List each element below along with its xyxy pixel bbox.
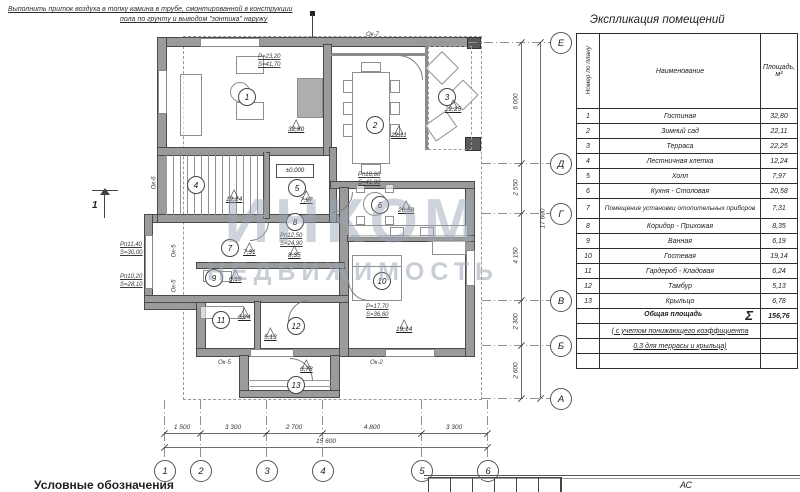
note-num-cell xyxy=(577,324,600,339)
room-tag-7: 7 xyxy=(221,239,239,257)
schedule-row: 7Помещение установки отопительных прибор… xyxy=(577,199,798,219)
furniture-sofa xyxy=(180,74,202,136)
room-schedule-table: Номер по плану Наименование Площадь, м² … xyxy=(576,33,798,369)
room-tag-13: 13 xyxy=(287,376,305,394)
drawing-sheet: Выполнить приток воздуха в топку камина … xyxy=(0,0,800,492)
dimension-value: 2 600 xyxy=(513,351,520,391)
room-area-value: 5,13 xyxy=(264,335,277,342)
total-value: 156,76 xyxy=(761,309,798,324)
peri-line: S=28,10 xyxy=(120,282,143,288)
chair xyxy=(343,80,353,93)
dimension-value: 4 150 xyxy=(513,236,520,276)
room-name: Коридор - Прихожая xyxy=(600,219,761,234)
room-peri-label: Рп11,40 S=30,00 xyxy=(120,242,143,257)
wall-segment xyxy=(240,356,248,394)
room-area: 7,97 xyxy=(761,169,798,184)
room-number: 1 xyxy=(238,88,256,106)
room-area-tag: △7,31 xyxy=(243,241,256,257)
room-area-value: 32,80 xyxy=(288,127,304,134)
room-name: Ванная xyxy=(600,234,761,249)
room-number: 6 xyxy=(371,196,389,214)
empty-cell xyxy=(600,354,761,369)
room-area-value: 19,14 xyxy=(396,327,412,334)
chair xyxy=(385,184,394,193)
window xyxy=(158,70,167,114)
axis-circle-E: Е xyxy=(550,32,572,54)
section-number: 1 xyxy=(92,200,98,211)
annotation-line-2: пола по грунту и выводом "зонтика" наруж… xyxy=(120,16,267,23)
note-area-cell xyxy=(761,324,798,339)
room-area-value: 20,58 xyxy=(398,208,414,215)
schedule-row: 4Лестничная клетка12,24 xyxy=(577,154,798,169)
wall-segment xyxy=(331,356,339,394)
room-num: 4 xyxy=(577,154,600,169)
wall-segment xyxy=(145,302,205,309)
stamp-cell xyxy=(451,478,473,492)
wall-segment xyxy=(158,215,348,222)
peri-line: Р=17,70 xyxy=(366,304,389,310)
wardrobe xyxy=(432,240,466,255)
room-area-value: 8,35 xyxy=(288,253,301,260)
axis-circle-A: А xyxy=(550,388,572,410)
room-number: 4 xyxy=(187,176,205,194)
chair xyxy=(390,80,400,93)
sigma-symbol: Σ xyxy=(745,311,753,321)
room-tag-8: 8 xyxy=(286,213,304,231)
room-name: Холл xyxy=(600,169,761,184)
room-num: 1 xyxy=(577,109,600,124)
peri-line: S=36,60 xyxy=(366,312,389,318)
axis-line xyxy=(482,163,552,164)
room-number: 12 xyxy=(287,317,305,335)
room-num: 12 xyxy=(577,279,600,294)
axis-circle-3: 3 xyxy=(256,460,278,482)
stamp-cell xyxy=(473,478,495,492)
room-area-tag: △32,80 xyxy=(288,118,304,134)
room-number: 2 xyxy=(366,116,384,134)
room-peri-label: Рп10,20 S=28,10 xyxy=(120,274,143,289)
window-tag: Ок-5 xyxy=(171,245,177,258)
peri-line: S=41,90 xyxy=(358,180,381,186)
room-area-value: 7,31 xyxy=(243,250,256,257)
schedule-row: 5Холл7,97 xyxy=(577,169,798,184)
schedule-row: 13Крыльцо6,78 xyxy=(577,294,798,309)
dimension-value: 4 800 xyxy=(354,424,390,431)
schedule-empty-row xyxy=(577,354,798,369)
total-num-cell xyxy=(577,309,600,324)
schedule-header-row: Номер по плану Наименование Площадь, м² xyxy=(577,34,798,109)
room-area-value: 6,78 xyxy=(300,367,313,374)
wall-segment xyxy=(331,182,474,188)
room-area-value: 6,19 xyxy=(229,277,242,284)
room-area: 32,80 xyxy=(761,109,798,124)
room-num: 11 xyxy=(577,264,600,279)
room-tag-10: 10 xyxy=(373,272,391,290)
chair xyxy=(343,124,353,137)
schedule-title: Экспликация помещений xyxy=(590,14,800,26)
axis-line xyxy=(266,400,267,458)
axis-line xyxy=(164,400,165,458)
room-name: Крыльцо xyxy=(600,294,761,309)
room-num: 9 xyxy=(577,234,600,249)
room-area-tag: △22,25 xyxy=(445,98,461,114)
peri-line: Р=23,20 xyxy=(258,54,281,60)
room-number: 11 xyxy=(212,311,230,329)
axis-line xyxy=(322,400,323,458)
window-tag: Ок-5 xyxy=(218,360,231,366)
empty-cell xyxy=(761,354,798,369)
schedule-row: 3Терраса22,25 xyxy=(577,139,798,154)
room-name: Тамбур xyxy=(600,279,761,294)
peri-line: Рп11,40 xyxy=(120,242,142,248)
window-tag: Ок-7 xyxy=(366,32,379,38)
room-area: 22,25 xyxy=(761,139,798,154)
total-label: Общая площадь xyxy=(644,311,702,318)
room-tag-6: 6 xyxy=(371,196,389,214)
section-arrow-line xyxy=(104,192,105,218)
annotation-line-1: Выполнить приток воздуха в топку камина … xyxy=(8,6,292,13)
room-area: 12,24 xyxy=(761,154,798,169)
stamp-cell xyxy=(517,478,539,492)
room-tag-2: 2 xyxy=(366,116,384,134)
dimension-total: 15 600 xyxy=(306,438,346,445)
chair xyxy=(390,102,400,115)
peri-line: S=30,00 xyxy=(120,250,143,256)
room-area: 7,31 xyxy=(761,199,798,219)
axis-line xyxy=(487,400,488,458)
room-num: 6 xyxy=(577,184,600,199)
window-tag: Ок-2 xyxy=(370,360,383,366)
legend-title: Условные обозначения xyxy=(34,478,174,492)
room-area-tag: △6,78 xyxy=(300,358,313,374)
room-peri-label: Р=17,70 S=36,60 xyxy=(366,304,389,319)
room-area-tag: △7,97 xyxy=(300,189,313,205)
room-num: 3 xyxy=(577,139,600,154)
axis-circle-B: Б xyxy=(550,335,572,357)
stove xyxy=(420,227,434,236)
room-name: Помещение установки отопительных приборо… xyxy=(600,199,761,219)
sink xyxy=(390,227,404,236)
room-area-tag: △6,19 xyxy=(229,268,242,284)
peri-line: Рп12,50 xyxy=(280,233,302,239)
room-area: 20,58 xyxy=(761,184,798,199)
note-num-cell xyxy=(577,339,600,354)
room-area-tag: △12,24 xyxy=(226,188,242,204)
schedule-row: 12Тамбур5,13 xyxy=(577,279,798,294)
window xyxy=(200,38,260,47)
kitchen-counter xyxy=(348,225,468,238)
room-tag-9: 9 xyxy=(205,269,223,287)
window xyxy=(466,250,475,286)
glazing-line xyxy=(331,53,427,56)
room-name: Терраса xyxy=(600,139,761,154)
schedule-row: 1Гостиная32,80 xyxy=(577,109,798,124)
room-area-value: 22,25 xyxy=(445,107,461,114)
room-tag-11: 11 xyxy=(212,311,230,329)
room-num: 13 xyxy=(577,294,600,309)
window xyxy=(385,349,435,357)
chair xyxy=(343,102,353,115)
schedule-row: 6Кухня - Столовая20,58 xyxy=(577,184,798,199)
room-area-value: 6,24 xyxy=(238,315,251,322)
total-label-cell: Общая площадьΣ xyxy=(600,309,761,324)
peri-line: Рп10,20 xyxy=(120,274,142,280)
wall-segment xyxy=(340,188,348,356)
room-name: Лестничная клетка xyxy=(600,154,761,169)
chair xyxy=(385,216,394,225)
room-tag-12: 12 xyxy=(287,317,305,335)
room-area-value: 22,11 xyxy=(391,133,407,140)
schedule-row: 10Гостевая19,14 xyxy=(577,249,798,264)
dimension-value: 2 700 xyxy=(277,424,311,431)
window xyxy=(250,349,294,357)
dimension-line xyxy=(164,447,488,448)
bed-pillow xyxy=(352,255,402,267)
schedule-row: 8Коридор - Прихожая8,35 xyxy=(577,219,798,234)
peri-line: Рп18,60 xyxy=(358,172,380,178)
col-header-number-text: Номер по плану xyxy=(585,46,592,94)
window-tag: Ок-6 xyxy=(151,177,157,190)
axis-line xyxy=(482,345,552,346)
room-area: 6,24 xyxy=(761,264,798,279)
staircase-hatch xyxy=(166,150,266,216)
dimension-total: 17 600 xyxy=(540,199,547,239)
note-area-cell xyxy=(761,339,798,354)
section-arrow-bar xyxy=(92,190,118,191)
col-header-name: Наименование xyxy=(600,34,761,109)
room-peri-label: Рп18,60 S=41,90 xyxy=(358,172,381,187)
room-area-tag: △20,58 xyxy=(398,199,414,215)
peri-line: S=41,70 xyxy=(258,62,281,68)
dimension-value: 1 500 xyxy=(167,424,197,431)
room-area: 5,13 xyxy=(761,279,798,294)
axis-circle-V: В xyxy=(550,290,572,312)
axis-circle-D: Д xyxy=(550,153,572,175)
fireplace xyxy=(297,78,323,118)
axis-line xyxy=(420,42,552,43)
window xyxy=(145,235,153,289)
room-name: Зимний сад xyxy=(600,124,761,139)
room-area-tag: △22,11 xyxy=(391,124,407,140)
schedule-note-2: 0,3 для террасы и крыльца) xyxy=(600,339,761,354)
room-name: Кухня - Столовая xyxy=(600,184,761,199)
schedule-row: 2Зимний сад22,11 xyxy=(577,124,798,139)
schedule-row: 9Ванная6,19 xyxy=(577,234,798,249)
chair xyxy=(356,216,365,225)
room-area: 8,35 xyxy=(761,219,798,234)
chair xyxy=(361,62,381,72)
room-tag-4: 4 xyxy=(187,176,205,194)
room-num: 10 xyxy=(577,249,600,264)
room-tag-1: 1 xyxy=(238,88,256,106)
peri-line: S=24,90 xyxy=(280,241,303,247)
axis-line xyxy=(200,400,201,458)
dimension-value: 6 000 xyxy=(513,82,520,122)
room-number: 8 xyxy=(286,213,304,231)
room-area: 22,11 xyxy=(761,124,798,139)
room-num: 5 xyxy=(577,169,600,184)
room-area-tag: △6,24 xyxy=(238,306,251,322)
schedule-note-row: ( с учетом понижающего коэффициента xyxy=(577,324,798,339)
schedule-note-row: 0,3 для террасы и крыльца) xyxy=(577,339,798,354)
room-name: Гардероб - Кладовая xyxy=(600,264,761,279)
wall-segment xyxy=(255,302,260,349)
room-area-value: 12,24 xyxy=(226,197,242,204)
room-area-tag: △5,13 xyxy=(264,326,277,342)
room-number: 7 xyxy=(221,239,239,257)
dimension-value: 3 300 xyxy=(437,424,471,431)
room-name: Гостевая xyxy=(600,249,761,264)
dimension-value: 2 550 xyxy=(513,168,520,208)
schedule-row: 11Гардероб - Кладовая6,24 xyxy=(577,264,798,279)
room-number: 9 xyxy=(205,269,223,287)
sheet-code: АС xyxy=(680,480,692,490)
room-area: 6,78 xyxy=(761,294,798,309)
wall-segment xyxy=(324,45,331,155)
room-name: Гостиная xyxy=(600,109,761,124)
stamp-cell xyxy=(539,478,561,492)
room-area-tag: △19,14 xyxy=(396,318,412,334)
room-num: 7 xyxy=(577,199,600,219)
room-area: 19,14 xyxy=(761,249,798,264)
axis-line xyxy=(421,400,422,458)
wall-segment xyxy=(197,263,344,268)
room-area: 6,19 xyxy=(761,234,798,249)
room-peri-label: Рп12,50 S=24,90 xyxy=(280,233,303,248)
axis-circle-G: Г xyxy=(550,203,572,225)
stamp-cell xyxy=(495,478,517,492)
room-number: 13 xyxy=(287,376,305,394)
room-number: 10 xyxy=(373,272,391,290)
room-peri-label: Р=23,20 S=41,70 xyxy=(258,54,281,69)
wall-segment xyxy=(145,296,348,302)
schedule-total-row: Общая площадьΣ 156,76 xyxy=(577,309,798,324)
room-area-value: 7,97 xyxy=(300,198,313,205)
col-header-area: Площадь, м² xyxy=(761,34,798,109)
wall-segment xyxy=(158,38,166,222)
level-mark: ±0.000 xyxy=(276,164,314,178)
stamp-cell xyxy=(429,478,451,492)
axis-circle-2: 2 xyxy=(190,460,212,482)
dimension-line xyxy=(164,433,488,434)
window-tag: Ок-5 xyxy=(171,280,177,293)
col-header-number: Номер по плану xyxy=(577,34,600,109)
schedule-note-1: ( с учетом понижающего коэффициента xyxy=(600,324,761,339)
dimension-value: 3 300 xyxy=(216,424,250,431)
empty-cell xyxy=(577,354,600,369)
dimension-value: 2 300 xyxy=(513,302,520,342)
axis-circle-4: 4 xyxy=(312,460,334,482)
room-num: 8 xyxy=(577,219,600,234)
titleblock-stamp-grid xyxy=(428,477,562,492)
room-num: 2 xyxy=(577,124,600,139)
